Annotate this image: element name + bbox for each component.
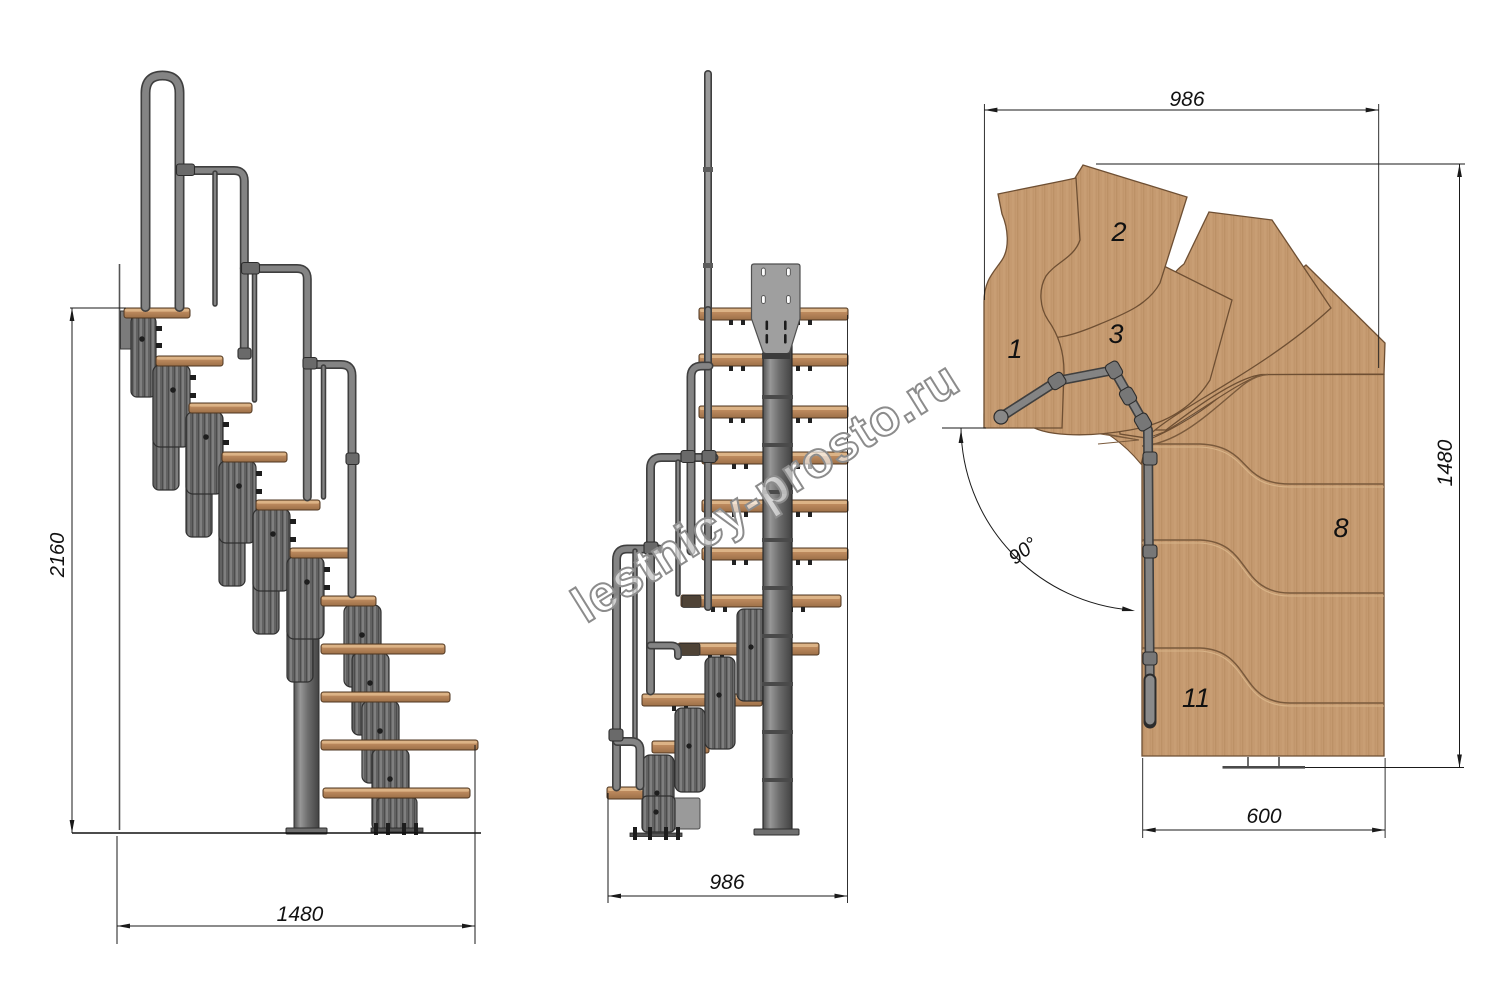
svg-text:2160: 2160 [47, 533, 69, 579]
svg-text:3: 3 [1108, 319, 1123, 349]
svg-text:11: 11 [1182, 683, 1210, 713]
svg-text:1480: 1480 [277, 903, 324, 926]
svg-text:600: 600 [1246, 805, 1281, 828]
svg-text:1: 1 [1007, 334, 1022, 364]
svg-text:1480: 1480 [1434, 439, 1457, 486]
svg-text:986: 986 [709, 871, 744, 894]
svg-text:986: 986 [1169, 88, 1204, 111]
svg-text:2: 2 [1110, 217, 1126, 247]
svg-text:8: 8 [1333, 513, 1348, 543]
